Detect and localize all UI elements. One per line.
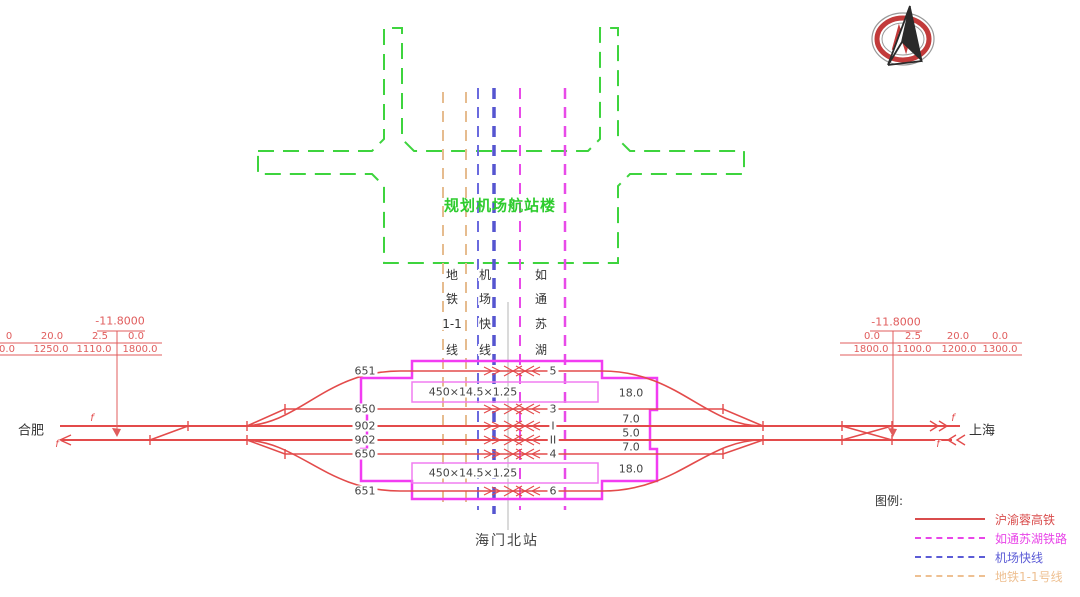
station-name-label: 海门北站 — [475, 534, 539, 548]
crossing-y440 — [484, 435, 540, 445]
dim-left-r2v1: 0.0 — [0, 345, 15, 355]
platform-label-bottom: 450×14.5×1.25 — [427, 468, 519, 479]
dim-right-r2v2: 1100.0 — [897, 345, 932, 355]
dim-left-r2v3: 1110.0 — [77, 345, 112, 355]
rutong-label-char-4: 湖 — [534, 344, 548, 356]
metro-label-char-1: 地 — [445, 269, 459, 281]
legend-line-metro — [915, 575, 985, 577]
f-mark-right-bottom: f — [935, 440, 941, 450]
dim-left-r1v4: 0.0 — [128, 332, 144, 342]
track-length-I: 902 — [353, 421, 378, 432]
crossing-y454 — [484, 449, 540, 459]
crossing-y491 — [484, 486, 540, 496]
siding-track-4 — [247, 440, 763, 454]
dim-right-r1v1: 0.0 — [864, 332, 880, 342]
dim-right-r1v2: 2.5 — [905, 332, 921, 342]
dim-left-elevation: -11.8000 — [95, 316, 144, 327]
f-mark-left-top: f — [89, 414, 95, 424]
crossover-right — [842, 426, 892, 440]
platform-label-top: 450×14.5×1.25 — [427, 387, 519, 398]
legend-label-airport: 机场快线 — [995, 549, 1043, 566]
dim-left-r1v2: 20.0 — [41, 332, 63, 342]
legend-item-metro: 地铁1-1号线 — [915, 568, 1063, 584]
legend-label-hsr: 沪渝蓉高铁 — [995, 511, 1055, 528]
dim-left-r2v2: 1250.0 — [34, 345, 69, 355]
airport-label-char-4: 线 — [478, 344, 492, 356]
rutong-label-char-3: 苏 — [534, 318, 548, 330]
spacing-label-3: 5.0 — [620, 428, 642, 439]
metro-label-char-4: 线 — [445, 344, 459, 356]
legend-title: 图例: — [875, 495, 903, 507]
terminal-label: 规划机场航站楼 — [444, 199, 556, 214]
city-label-hefei: 合肥 — [18, 425, 44, 438]
spacing-label-1: 18.0 — [617, 388, 646, 399]
legend-label-metro: 地铁1-1号线 — [995, 568, 1063, 585]
legend-label-rutong: 如通苏湖铁路 — [995, 530, 1067, 547]
dim-left-r1v1: 0 — [6, 332, 12, 342]
rutong-label-char-2: 通 — [534, 293, 548, 305]
track-length-4: 650 — [353, 449, 378, 460]
metro-label-char-3: 1-1 — [441, 318, 463, 330]
airport-label-char-1: 机 — [478, 269, 492, 281]
city-label-shanghai: 上海 — [969, 425, 995, 438]
crossover-left — [150, 426, 188, 440]
airport-label-char-2: 场 — [478, 293, 492, 305]
f-mark-right-top: f — [950, 414, 956, 424]
legend-item-airport: 机场快线 — [915, 549, 1043, 565]
legend-item-hsr: 沪渝蓉高铁 — [915, 511, 1055, 527]
siding-track-5 — [243, 371, 762, 426]
track-length-II: 902 — [353, 435, 378, 446]
track-length-6: 651 — [353, 486, 378, 497]
dim-left-r1v3: 2.5 — [92, 332, 108, 342]
terminal-building-outline — [258, 28, 744, 263]
dim-right-r2v4: 1300.0 — [983, 345, 1018, 355]
f-mark-left-bottom: f — [54, 440, 60, 450]
spacing-label-2: 7.0 — [620, 414, 642, 425]
track-number-3: 3 — [548, 404, 559, 415]
dim-right-elevation: -11.8000 — [871, 317, 920, 328]
dim-right-r2v3: 1200.0 — [942, 345, 977, 355]
dim-right-r1v4: 0.0 — [992, 332, 1008, 342]
track-number-5: 5 — [548, 366, 559, 377]
siding-track-3 — [247, 409, 763, 426]
dim-left-r2v4: 1800.0 — [123, 345, 158, 355]
crossing-y371 — [484, 366, 540, 376]
crossing-y426 — [484, 421, 540, 431]
track-length-5: 651 — [353, 366, 378, 377]
spacing-label-4: 7.0 — [620, 442, 642, 453]
dim-right-r1v3: 20.0 — [947, 332, 969, 342]
legend-item-rutong: 如通苏湖铁路 — [915, 530, 1067, 546]
track-number-6: 6 — [548, 486, 559, 497]
track-layout-drawing: 规划机场航站楼 地 铁 1-1 线 机 场 快 线 如 通 苏 湖 合肥 上海 … — [0, 0, 1080, 597]
rutong-label-char-1: 如 — [534, 269, 548, 281]
track-number-4: 4 — [548, 449, 559, 460]
metro-label-char-2: 铁 — [445, 293, 459, 305]
dim-right-r2v1: 1800.0 — [854, 345, 889, 355]
legend-line-hsr — [915, 518, 985, 520]
crossing-y409 — [484, 404, 540, 414]
track-length-3: 650 — [353, 404, 378, 415]
end-arrows-left — [60, 426, 84, 445]
spacing-label-5: 18.0 — [617, 464, 646, 475]
airport-label-char-3: 快 — [478, 318, 492, 330]
north-arrow-icon — [872, 6, 934, 65]
track-number-I: I — [549, 421, 556, 432]
track-number-II: II — [548, 435, 559, 446]
legend-line-airport — [915, 556, 985, 558]
legend-line-rutong — [915, 537, 985, 539]
